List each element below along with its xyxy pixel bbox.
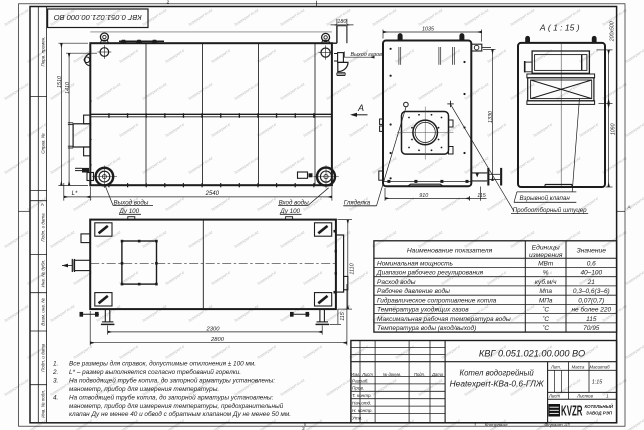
svg-text:0,3–0,6(3–6): 0,3–0,6(3–6) xyxy=(573,288,610,295)
svg-text:˚С: ˚С xyxy=(542,315,549,323)
svg-text:2: 2 xyxy=(167,0,170,6)
svg-text:Все размеры для справок, допус: Все размеры для справок, допустимые откл… xyxy=(69,360,256,368)
svg-text:Рабочее давление воды: Рабочее давление воды xyxy=(377,287,450,295)
svg-text:КВГ 0.051.021.00.000 ВО: КВГ 0.051.021.00.000 ВО xyxy=(54,13,142,22)
svg-text:L*: L* xyxy=(72,191,78,197)
svg-text:Утв.: Утв. xyxy=(352,415,362,420)
svg-text:Инв. № дубл.: Инв. № дубл. xyxy=(41,260,46,288)
svg-text:Наименование показателя: Наименование показателя xyxy=(407,247,493,254)
svg-text:1510: 1510 xyxy=(57,76,63,88)
svg-text:Т. контр.: Т. контр. xyxy=(352,393,372,398)
svg-text:Нач.отд.: Нач.отд. xyxy=(352,401,371,406)
svg-text:На подводящей трубе котла, до: На подводящей трубе котла, до запорной а… xyxy=(69,377,275,385)
svg-text:Лист: Лист xyxy=(361,372,373,377)
svg-text:МПа: МПа xyxy=(539,297,553,304)
svg-text:Максимальная рабочая температу: Максимальная рабочая температура воды xyxy=(377,315,511,323)
svg-text:КОТЕЛЬНЫЙ: КОТЕЛЬНЫЙ xyxy=(585,404,614,409)
svg-text:не более 220: не более 220 xyxy=(571,306,611,314)
svg-text:Инв. № подл.: Инв. № подл. xyxy=(41,390,46,418)
svg-text:Взрывной клапан: Взрывной клапан xyxy=(520,195,571,202)
svg-text:2800: 2800 xyxy=(210,337,225,343)
svg-text:манометр, прибор для измерения: манометр, прибор для измерения температу… xyxy=(69,385,219,393)
svg-text:Выход газов: Выход газов xyxy=(351,52,383,58)
svg-text:Справ. №: Справ. № xyxy=(41,133,46,154)
svg-text:Значение: Значение xyxy=(577,247,607,254)
svg-text:№ докум.: № докум. xyxy=(383,372,401,377)
svg-text:Масса: Масса xyxy=(572,364,585,369)
svg-text:115: 115 xyxy=(340,311,346,321)
svg-text:Лит.: Лит. xyxy=(550,364,561,369)
svg-text:Копировал: Копировал xyxy=(485,422,508,427)
svg-text:0,6: 0,6 xyxy=(587,261,596,268)
svg-text:Гидравлическое сопротивление к: Гидравлическое сопротивление котла xyxy=(377,296,497,304)
svg-text:Расход воды: Расход воды xyxy=(377,278,416,286)
svg-text:манометр, прибор для измерения: манометр, прибор для измерения температу… xyxy=(69,402,284,410)
svg-text:115: 115 xyxy=(586,316,597,323)
svg-text:Подп.: Подп. xyxy=(414,372,425,377)
svg-text:1090: 1090 xyxy=(611,123,617,135)
svg-text:На отводящей трубе котла, до з: На отводящей трубе котла, до запорной ар… xyxy=(69,394,274,402)
svg-text:0,07(0,7): 0,07(0,7) xyxy=(578,297,604,304)
svg-text:1035: 1035 xyxy=(422,27,435,33)
svg-text:2: 2 xyxy=(302,426,305,430)
svg-text:клапан Ду не менее 40 и обвод: клапан Ду не менее 40 и обвод с обратным… xyxy=(69,410,291,418)
svg-text:115: 115 xyxy=(477,193,487,199)
svg-text:Единицы: Единицы xyxy=(532,243,560,251)
svg-text:2.: 2. xyxy=(52,369,58,376)
svg-text:Перв. примен.: Перв. примен. xyxy=(41,37,46,67)
svg-text:Пров.: Пров. xyxy=(352,386,364,391)
svg-text:21: 21 xyxy=(587,279,596,286)
svg-text:МВт: МВт xyxy=(538,261,554,268)
svg-text:3.: 3. xyxy=(53,378,58,385)
svg-text:Лист: Лист xyxy=(548,394,560,399)
svg-text:измерения: измерения xyxy=(529,252,563,259)
svg-text:Диапазон рабочего регулировани: Диапазон рабочего регулирования xyxy=(376,269,484,277)
svg-text:1.: 1. xyxy=(53,361,58,368)
svg-text:KVZR: KVZR xyxy=(561,403,583,419)
svg-text:1330: 1330 xyxy=(488,111,494,123)
svg-text:1: 1 xyxy=(474,422,477,427)
svg-text:Температура уходящих газов: Температура уходящих газов xyxy=(377,306,469,314)
svg-text:2540: 2540 xyxy=(205,191,220,197)
svg-text:Heatexpert-КВа-0,6-ГЛЖ: Heatexpert-КВа-0,6-ГЛЖ xyxy=(450,380,545,389)
svg-text:%: % xyxy=(543,270,549,277)
svg-text:Подп. и дата: Подп. и дата xyxy=(41,343,46,372)
svg-text:Листов: Листов xyxy=(576,394,593,399)
svg-text:Номинальная мощность: Номинальная мощность xyxy=(377,261,454,268)
svg-text:180: 180 xyxy=(337,19,346,25)
svg-text:L* – размер выполняется соглас: L* – размер выполняется согласно требова… xyxy=(69,368,241,376)
svg-text:А ( 1 : 15 ): А ( 1 : 15 ) xyxy=(539,23,580,33)
svg-text:1110: 1110 xyxy=(350,263,356,274)
svg-text:Взам. инв. №: Взам. инв. № xyxy=(41,298,46,326)
svg-text:Масштаб: Масштаб xyxy=(589,364,610,369)
svg-text:1410: 1410 xyxy=(65,82,71,94)
svg-text:2300: 2300 xyxy=(206,326,221,332)
svg-text:4.: 4. xyxy=(53,395,58,402)
svg-text:40–100: 40–100 xyxy=(580,270,602,277)
svg-text:ЗАВОД РЭП: ЗАВОД РЭП xyxy=(586,411,613,416)
svg-text:Формат А3: Формат А3 xyxy=(544,422,570,427)
svg-text:˚С: ˚С xyxy=(542,306,549,314)
svg-text:Пробоотборный штуцер: Пробоотборный штуцер xyxy=(513,207,588,214)
svg-text:1:15: 1:15 xyxy=(592,379,603,385)
svg-text:КВГ 0.051.021.00.000 ВО: КВГ 0.051.021.00.000 ВО xyxy=(479,348,585,358)
svg-text:Мпа: Мпа xyxy=(539,288,552,295)
svg-text:Изм.: Изм. xyxy=(351,372,360,377)
svg-text:Разраб.: Разраб. xyxy=(352,378,369,383)
svg-text:Подп. и дата: Подп. и дата xyxy=(41,213,46,242)
svg-text:200х500: 200х500 xyxy=(609,21,615,42)
svg-text:˚С: ˚С xyxy=(542,324,549,332)
svg-text:Котел водогрейный: Котел водогрейный xyxy=(460,368,535,377)
svg-text:А: А xyxy=(357,103,364,113)
svg-text:Дата: Дата xyxy=(431,372,444,377)
svg-text:Н. контр.: Н. контр. xyxy=(352,408,373,413)
svg-text:910: 910 xyxy=(419,193,428,199)
svg-text:Температура воды (вход/выход): Температура воды (вход/выход) xyxy=(377,324,476,332)
svg-text:70/95: 70/95 xyxy=(583,325,600,332)
svg-text:куб.м/ч: куб.м/ч xyxy=(535,278,557,286)
